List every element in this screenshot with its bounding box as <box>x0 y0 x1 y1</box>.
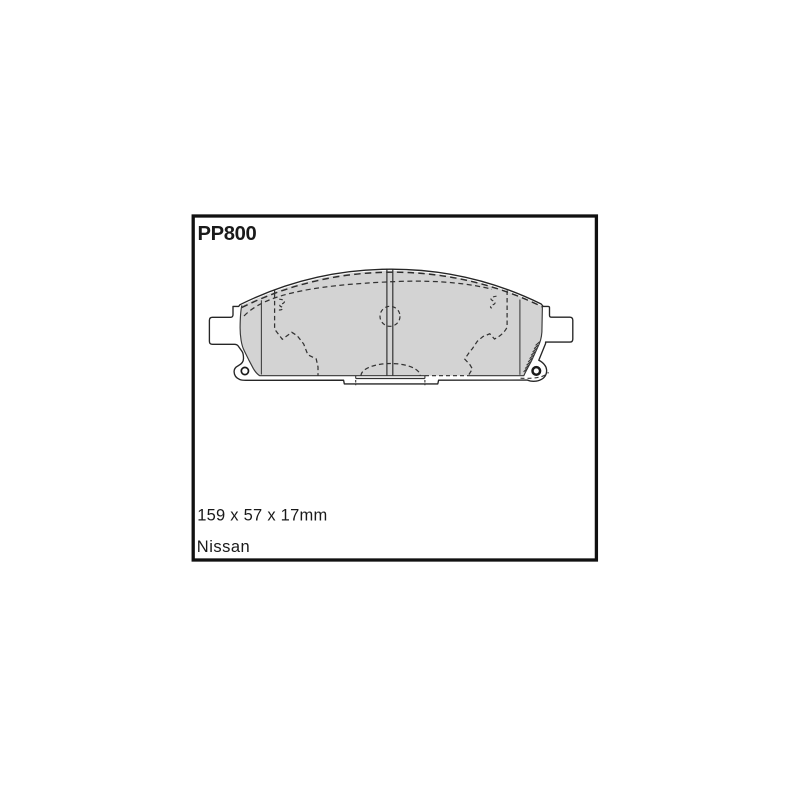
svg-text:Nissan: Nissan <box>197 538 250 556</box>
svg-text:PP800: PP800 <box>198 223 257 245</box>
svg-text:159 x 57 x 17mm: 159 x 57 x 17mm <box>197 507 327 525</box>
